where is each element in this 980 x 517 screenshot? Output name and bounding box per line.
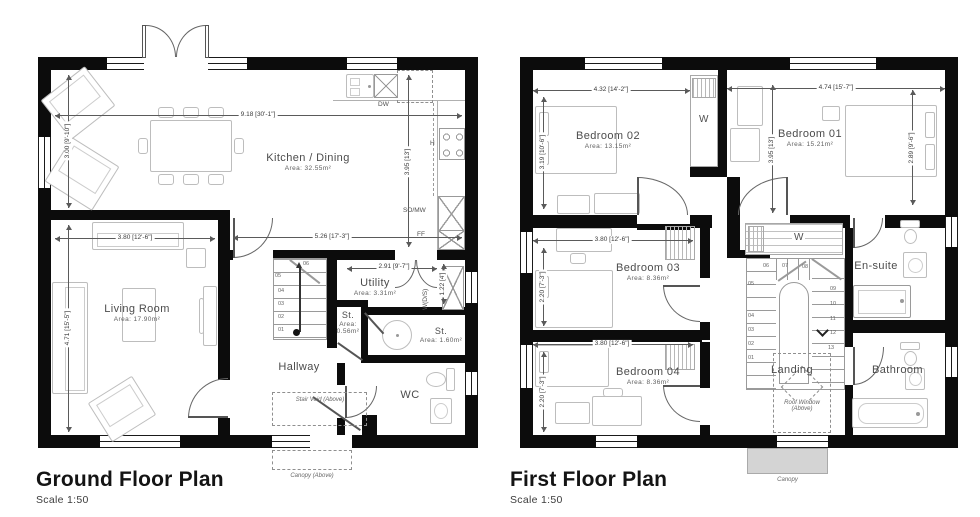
canopy-label: Canopy (Above) [258,473,366,479]
door-leaf [338,342,363,360]
door-leaf [142,25,146,58]
wall [845,333,853,347]
room-label-store-small: St. Area: 0.56m² [332,310,364,335]
kitchen-sink [346,74,374,98]
room-label-store-large: St. Area: 1.60m² [418,326,464,344]
wall-unit-dashed [397,70,433,103]
wall [945,377,958,448]
armchair [44,137,119,211]
stair-number: 03 [278,301,284,307]
dimension-label: 2.91 [9'-7"] [376,263,411,271]
dimension-label: 4.74 [15'-7"] [817,84,856,92]
stair-number: 09 [830,286,836,292]
wall [361,355,465,363]
room-label-bedroom03: Bedroom 03 Area: 8.36m² [598,262,698,282]
basin [430,398,452,424]
window [107,57,144,70]
room-label-bedroom02: Bedroom 02 Area: 13.15m² [558,130,658,150]
cabinet [557,195,590,214]
first-floor-title: First Floor Plan [510,468,667,492]
wall [727,177,740,258]
dimension-label: 4.71 [15'-5"] [64,309,72,348]
dimension-label: 1.22 [4'] [439,271,447,298]
dishwasher [374,74,398,98]
door-leaf [786,177,788,215]
cabinet [730,128,760,162]
cabinet [737,86,763,126]
cabinet [555,402,590,424]
stair-number: 01 [278,327,284,333]
wall [218,210,230,380]
cylinder [382,320,412,350]
door-arc [738,177,788,215]
ground-floor-scale: Scale 1:50 [36,494,89,506]
hob-label: H [430,140,435,147]
wall [337,250,395,260]
room-label-hallway: Hallway [259,361,339,373]
toilet-cistern [446,368,455,391]
room-label-bedroom04: Bedroom 04 Area: 8.36m² [598,366,698,386]
window [520,345,533,388]
stair-number: 06 [763,263,769,269]
floorplan-canvas: DW H SO/MW FF W(D/S) [0,0,980,517]
shower [853,285,911,318]
dimension-label: 3.80 [12'-6"] [593,236,632,244]
door-arc [663,285,700,322]
sink-tap [368,85,371,88]
wall [520,57,533,232]
stair-number: 11 [830,316,836,322]
desk-chair [570,253,586,264]
oven-microwave [438,196,465,232]
stair-number: 04 [278,288,284,294]
room-label-living: Living Room Area: 17.90m² [87,303,187,323]
desk [594,193,640,214]
stair-number: 02 [748,341,754,347]
wall [700,425,710,435]
tv-unit [203,286,217,346]
bedside-table [822,106,840,121]
dining-chair [234,138,244,154]
dining-chair [158,107,174,118]
room-label-bedroom01: Bedroom 01 Area: 15.21m² [760,128,860,148]
window [777,435,828,448]
dimension-label: 3.19 [10'-6"] [539,133,547,172]
stair-number: 03 [748,327,754,333]
wall [520,273,533,345]
door-arc [853,218,883,248]
room-label-bathroom: Bathroom [855,364,940,376]
wall [845,320,958,333]
wall [465,303,478,372]
stair-number: 04 [748,313,754,319]
stair-number: 05 [748,281,754,287]
first-floor-scale: Scale 1:50 [510,494,563,506]
wall [247,57,347,70]
window [945,347,958,377]
window [465,272,478,303]
dishwasher-label: DW [378,101,389,108]
wall [520,388,533,448]
wall [700,228,710,278]
toilet-bowl [426,372,446,387]
desk-chair [603,388,623,397]
dimension-label: 2.89 [9'-6"] [908,130,916,165]
oven-microwave-label: SO/MW [403,207,426,214]
toilet-cistern [900,220,920,228]
window [272,435,310,448]
dining-table [150,120,232,172]
bathtub [852,398,928,428]
canopy-outline [272,450,352,470]
stair-newel-dot [293,329,300,336]
door-leaf [637,177,639,215]
dining-chair [208,174,224,185]
sink-bowl [350,88,360,96]
wall [218,418,230,435]
wardrobe-hatch [748,226,764,252]
stair-number: 05 [275,273,281,279]
toilet-bowl [904,229,917,244]
stair-number: 08 [802,264,808,270]
window [945,217,958,247]
stair-number: 01 [748,355,754,361]
wall [637,435,777,448]
wall [465,395,478,448]
wall [828,435,958,448]
stair-number: 10 [830,301,836,307]
window [465,372,478,395]
dimension-label: 2.20 [7'-3"] [539,374,547,409]
stair-void-label: Stair Void (Above) [276,397,364,403]
armchair [88,376,156,443]
wardrobe-hatch [692,78,716,98]
wall [437,250,465,260]
sink-bowl [350,78,360,86]
wall [845,228,853,320]
canopy [747,448,828,474]
dining-chair [183,107,199,118]
stair-number: 06 [303,261,309,267]
door-arc [663,385,700,422]
wall [700,342,710,388]
room-label-kitchen: Kitchen / Dining Area: 32.55m² [253,152,363,172]
ground-floor-title: Ground Floor Plan [36,468,224,492]
door-arc [233,218,273,258]
door-leaf [853,218,855,248]
window [347,57,397,70]
door-arc [416,260,437,288]
roof-window-label: Roof Window (Above) [775,400,829,412]
side-table [186,248,206,268]
dining-chair [183,174,199,185]
wall [945,57,958,217]
dining-chair [138,138,148,154]
dimension-label: 2.20 [7'-3"] [539,269,547,304]
door-leaf [205,25,209,58]
window [596,435,637,448]
door-arc [176,25,206,57]
stair-number: 12 [830,330,836,336]
room-label-utility: Utility Area: 3.31m² [345,277,405,297]
wall [533,215,637,228]
room-label-ensuite: En-suite [845,260,907,272]
wall [465,57,478,272]
armchair [41,66,116,140]
stair-arrow-head [296,262,302,268]
dimension-label: 3.95 [13'] [404,147,412,178]
tv [199,298,204,334]
canopy-label: Canopy [747,477,828,483]
door-leaf [188,416,228,418]
wall [352,435,478,448]
door-arc [146,25,176,57]
stair-arrow-line [299,268,301,332]
dimension-label: 5.26 [17'-3"] [313,233,352,241]
dining-chair [208,107,224,118]
dimension-label: 4.32 [14'-2"] [592,86,631,94]
wardrobe-label: W [699,114,708,125]
room-label-landing: Landing [752,364,832,376]
window [520,232,533,273]
door-arc [188,378,228,418]
window [208,57,247,70]
dimension-label: 3.80 [12'-6"] [593,340,632,348]
dining-chair [158,174,174,185]
wardrobe-label: W [792,232,805,243]
stair-number: 02 [278,314,284,320]
window [790,57,876,70]
wall [180,435,272,448]
room-label-wc: WC [385,389,435,401]
wall [38,188,51,448]
dimension-label: 3.00 [9'-10"] [64,122,72,161]
hob [439,128,465,160]
stair-number: 13 [828,345,834,351]
dimension-label: 9.18 [30'-1"] [239,111,278,119]
stair-number: 07 [782,263,788,269]
desk [592,396,642,426]
wall [662,57,790,70]
wall-unit-dashed [433,103,434,196]
window [585,57,662,70]
door-leaf [663,285,700,287]
door-arc [637,177,688,215]
wall [51,210,228,220]
toilet-cistern [900,342,920,350]
wall [718,70,727,170]
dimension-label: 3.80 [12'-6"] [116,234,155,242]
